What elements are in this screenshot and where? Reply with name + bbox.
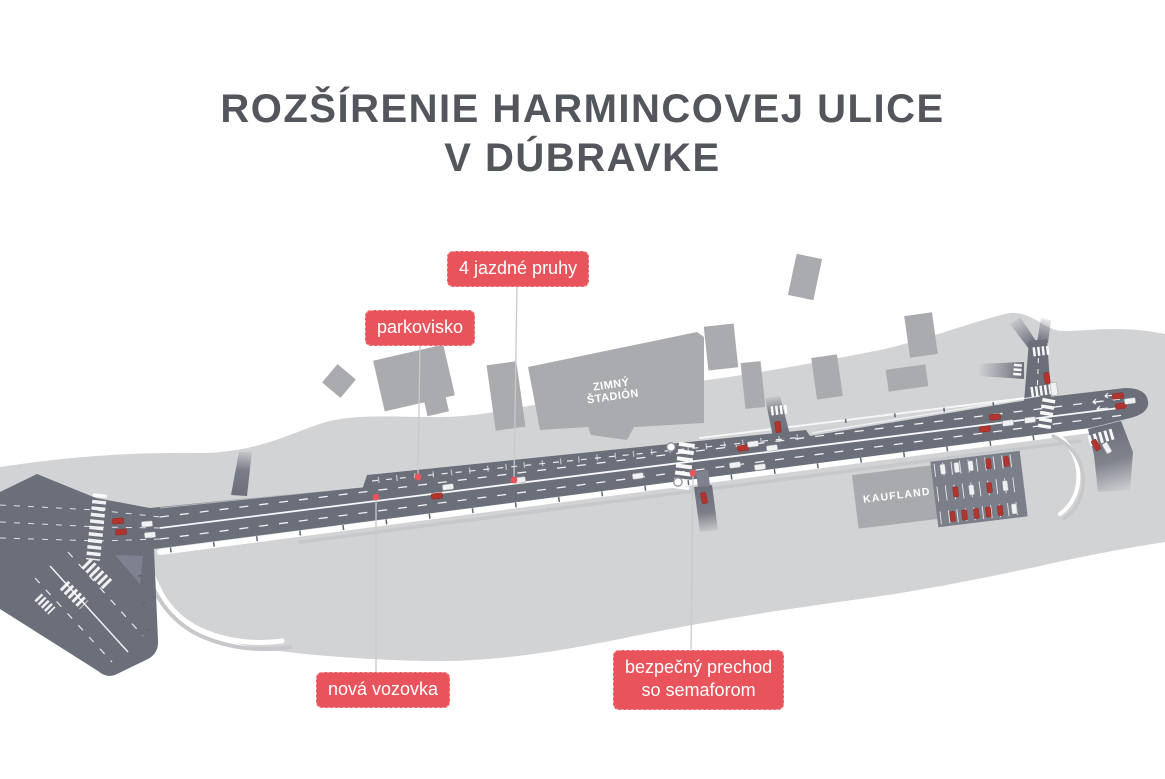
kaufland-parking-lot xyxy=(930,451,1027,527)
label-new-road: nová vozovka xyxy=(316,672,450,708)
label-parking: parkovisko xyxy=(365,310,475,346)
kaufland-building: KAUFLAND xyxy=(852,465,938,528)
label-4-lanes-text: 4 jazdné pruhy xyxy=(459,257,577,280)
label-4-lanes: 4 jazdné pruhy xyxy=(447,251,589,287)
label-parking-text: parkovisko xyxy=(377,316,463,339)
label-safe-crossing: bezpečný prechod so semaforom xyxy=(613,650,784,710)
label-safe-crossing-line2: so semaforom xyxy=(625,679,772,702)
zimny-stadion-building: ZIMNÝ ŠTADIÓN xyxy=(528,332,704,440)
infographic-canvas: ROZŠÍRENIE HARMINCOVEJ ULICE V DÚBRAVKE xyxy=(0,0,1165,779)
label-safe-crossing-line1: bezpečný prechod xyxy=(625,656,772,679)
label-new-road-text: nová vozovka xyxy=(328,678,438,701)
map-illustration: ZIMNÝ ŠTADIÓN KAUFLAND xyxy=(0,0,1165,779)
traffic-island-2 xyxy=(696,470,710,487)
